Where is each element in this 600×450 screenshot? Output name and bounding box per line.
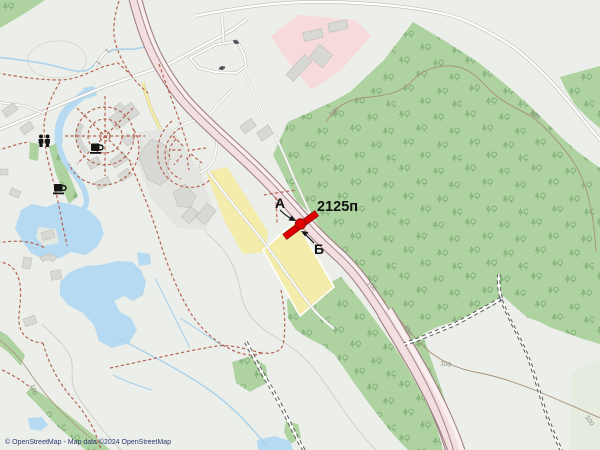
svg-text:© OpenStreetMap - Map data ©20: © OpenStreetMap - Map data ©2024 OpenStr… xyxy=(5,438,171,446)
svg-text:2125п: 2125п xyxy=(317,199,358,215)
svg-text:А: А xyxy=(275,195,285,211)
svg-text:Б: Б xyxy=(314,241,324,257)
